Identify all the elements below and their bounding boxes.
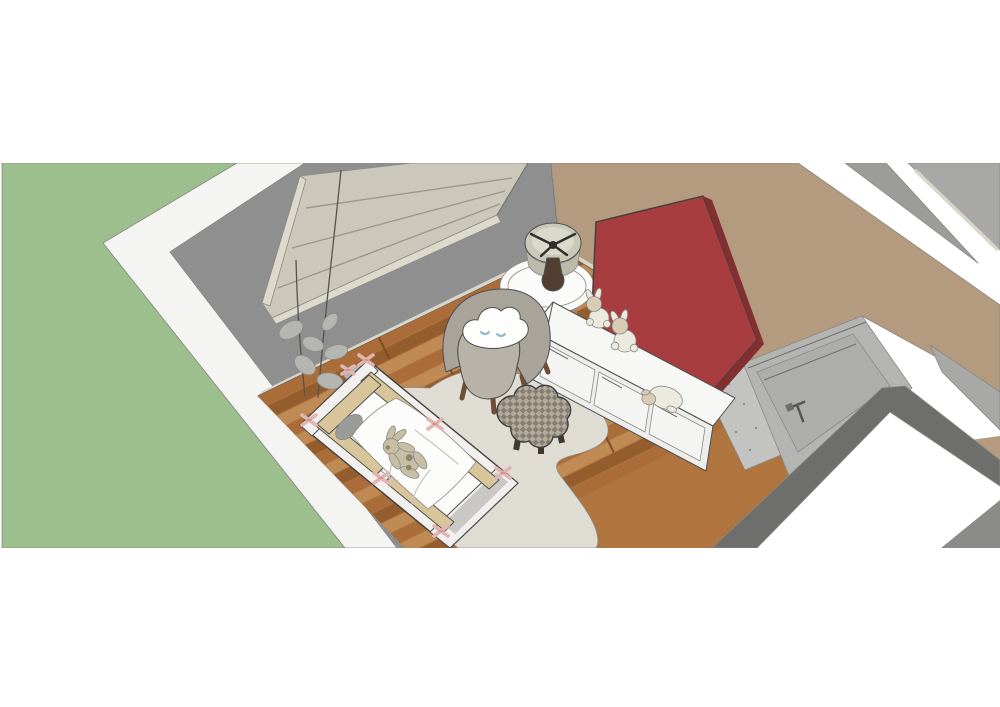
- speckle: [749, 449, 751, 451]
- bunny-paw: [587, 319, 594, 326]
- bunny-paw: [611, 342, 619, 350]
- render-canvas: [0, 0, 1000, 707]
- bunny-paw: [604, 321, 611, 328]
- speckle: [743, 403, 745, 405]
- bunny-paw: [630, 344, 638, 352]
- speckle: [755, 427, 757, 429]
- lamp-spider-hub: [549, 241, 557, 249]
- bunny-head: [612, 318, 628, 334]
- nursery-3d-render: [0, 0, 1000, 707]
- speckle: [735, 431, 737, 433]
- bunny-head: [587, 297, 602, 312]
